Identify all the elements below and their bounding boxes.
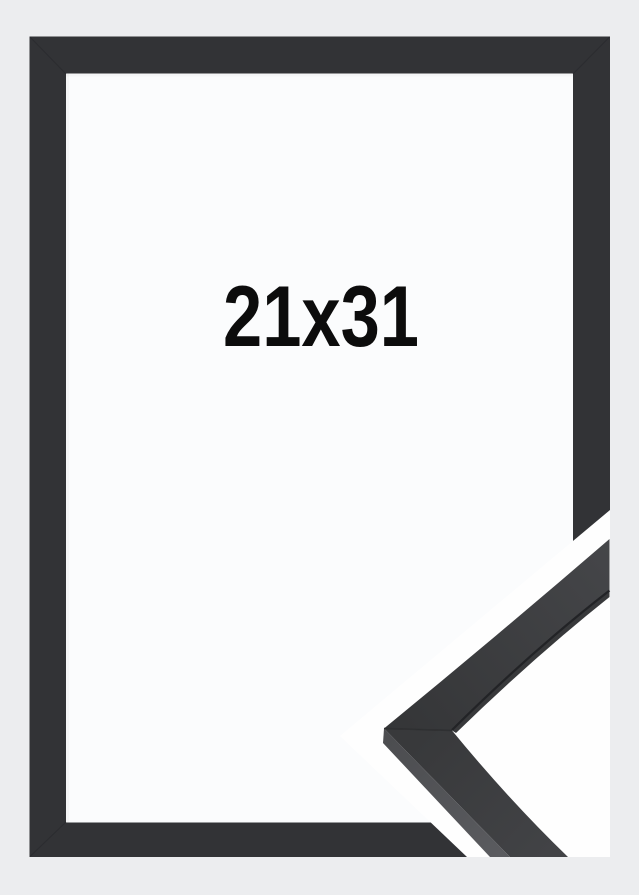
svg-text:21x31: 21x31 <box>223 269 419 365</box>
